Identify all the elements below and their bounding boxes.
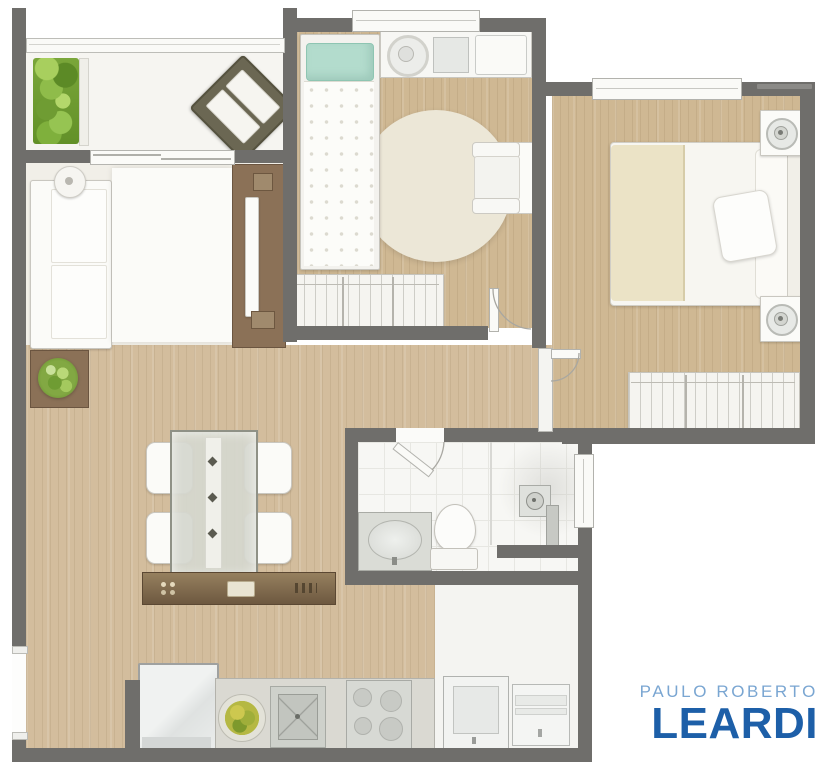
sofa-cushion xyxy=(51,265,107,339)
wall xyxy=(562,428,815,444)
teal-pillow xyxy=(306,43,374,81)
bedroom2-door-leaf xyxy=(489,288,499,332)
master-wardrobe xyxy=(628,372,800,432)
tub-basin xyxy=(453,686,499,734)
floor-lamp xyxy=(54,166,86,198)
master-bedroom-window xyxy=(592,78,742,100)
plant xyxy=(38,358,78,398)
sideboard xyxy=(142,572,336,605)
sideboard-decor-dots xyxy=(161,582,166,587)
bedroom2-window xyxy=(352,10,480,32)
burner xyxy=(354,717,372,735)
television xyxy=(245,197,259,317)
wall xyxy=(345,442,358,585)
wall xyxy=(283,326,488,340)
washer-space xyxy=(512,684,570,746)
window-line xyxy=(583,459,584,523)
burner xyxy=(379,717,403,741)
nightstand-top xyxy=(760,110,802,156)
bathroom-door-opening xyxy=(396,428,444,442)
pillow xyxy=(712,189,779,264)
tv-decor xyxy=(251,311,275,329)
speaker-dot xyxy=(778,130,783,135)
dresser-box xyxy=(433,37,469,73)
wardrobe-divider xyxy=(742,375,744,429)
wall xyxy=(345,571,578,585)
double-bed xyxy=(610,142,802,306)
window-line xyxy=(596,88,738,89)
slider-panel-line xyxy=(93,154,161,156)
washer-shelf xyxy=(515,708,567,715)
fruit-bowl xyxy=(218,694,266,742)
balcony-railing xyxy=(26,38,285,53)
beige-blanket xyxy=(611,145,685,301)
shower-half-wall xyxy=(497,545,578,558)
toilet xyxy=(430,504,478,570)
wall xyxy=(125,680,140,750)
armchair-arm xyxy=(472,198,520,214)
wall xyxy=(233,150,283,163)
mirror-center xyxy=(398,46,414,62)
vanity-faucet xyxy=(392,557,397,565)
wardrobe-divider xyxy=(392,277,394,329)
glass-dining-table xyxy=(170,430,258,578)
refrigerator xyxy=(138,663,219,759)
sofa-cushion xyxy=(51,189,107,263)
dresser-tray xyxy=(475,35,527,75)
wall xyxy=(800,82,815,444)
washer-shelf xyxy=(515,695,567,706)
cooktop xyxy=(346,680,412,752)
planter-edge xyxy=(79,58,89,146)
wardrobe-rail xyxy=(631,382,795,383)
wall xyxy=(12,748,592,762)
fine-print-text-smudge xyxy=(757,84,812,89)
armchair-seat xyxy=(474,156,520,200)
wall xyxy=(12,8,26,648)
armchair xyxy=(470,140,534,214)
entry-frame xyxy=(12,732,28,740)
bedroom2-wardrobe xyxy=(292,274,444,332)
burner xyxy=(380,690,402,712)
sink-drain xyxy=(295,714,300,719)
dresser xyxy=(380,30,532,78)
slider-panel-line xyxy=(161,158,231,160)
hall-partition xyxy=(538,348,553,432)
tv-decor xyxy=(253,173,273,191)
railing-line xyxy=(29,44,280,45)
toilet-tank xyxy=(430,548,478,570)
sofa xyxy=(30,180,112,349)
sideboard-decor-dashes xyxy=(295,583,317,593)
sliding-door xyxy=(90,150,235,165)
window-line xyxy=(356,20,476,21)
entry-frame xyxy=(12,646,28,654)
wall xyxy=(532,18,546,348)
area-rug xyxy=(112,168,232,342)
wall xyxy=(26,150,90,163)
shower-head-dot xyxy=(532,498,536,502)
single-bed xyxy=(300,34,380,270)
laundry-tub xyxy=(443,676,509,750)
toilet-bowl xyxy=(434,504,476,552)
tv-panel xyxy=(232,164,286,348)
brand-logo: PAULO ROBERTO LEARDI xyxy=(640,682,818,744)
quilt xyxy=(304,81,374,266)
vertical-garden xyxy=(33,58,79,144)
burner xyxy=(353,688,372,707)
washer-drain xyxy=(538,729,542,737)
nightstand-bottom xyxy=(760,296,802,342)
entry-opening xyxy=(12,648,26,738)
sideboard-decor-tray xyxy=(227,581,255,597)
tub-drain xyxy=(472,737,476,744)
wardrobe-rail xyxy=(295,284,439,285)
floor-plan: PAULO ROBERTO LEARDI xyxy=(0,0,830,768)
vanity-basin xyxy=(368,520,422,560)
brand-logo-line2: LEARDI xyxy=(640,704,818,744)
speaker-dot xyxy=(778,316,783,321)
wall xyxy=(283,8,297,342)
master-door-leaf xyxy=(551,349,581,359)
lamp-center xyxy=(65,177,73,185)
kitchen-sink xyxy=(270,686,326,748)
shower-divider xyxy=(490,442,492,545)
wardrobe-divider xyxy=(685,375,687,429)
wardrobe-divider xyxy=(342,277,344,329)
bathroom-window xyxy=(574,454,594,528)
vanity-sink xyxy=(358,512,432,571)
